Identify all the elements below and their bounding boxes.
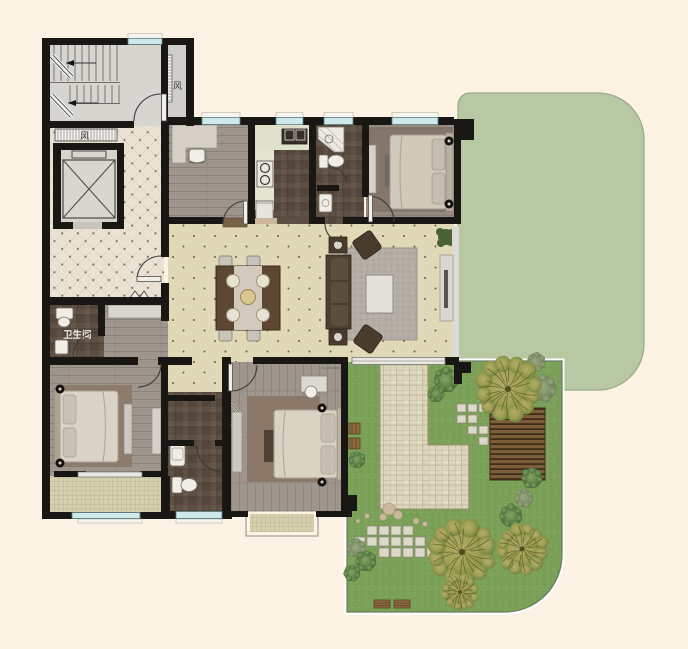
svg-text:卫生间: 卫生间 bbox=[63, 329, 92, 341]
svg-text:风: 风 bbox=[80, 131, 89, 141]
svg-text:风: 风 bbox=[173, 81, 182, 91]
